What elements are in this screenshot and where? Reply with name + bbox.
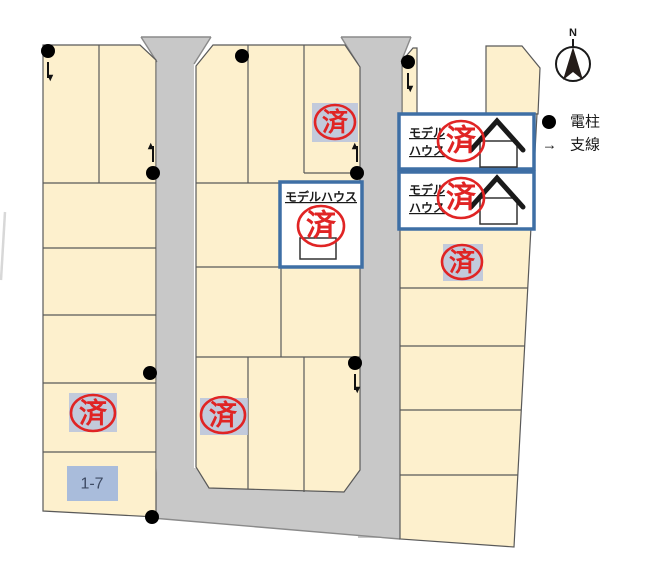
sold-stamp-right-block: 済 [442,244,483,281]
utility-pole-marker [145,510,159,524]
lot-map-svg: 1-7 モデルハウス [0,0,665,586]
utility-pole-marker [350,166,364,180]
utility-pole-marker [348,356,362,370]
utility-pole-marker [401,55,415,69]
left-edge-artifact [1,212,5,280]
lot-1-7-label: 1-7 [67,466,118,501]
legend-pole-icon [542,115,556,129]
sold-stamp-middle-top: 済 [312,103,358,142]
left-block: 1-7 [43,45,156,517]
lot-map-canvas: 1-7 モデルハウス [0,0,665,586]
top-right-lot [486,46,540,114]
compass-north-label: N [569,27,577,39]
sold-stamp-text: 済 [446,125,477,158]
legend-pole-label: 電柱 [570,114,600,131]
sold-stamp-text: 済 [322,107,349,137]
utility-pole-marker [235,49,249,63]
legend-guy-wire-label: 支線 [570,137,600,154]
compass-needle [563,47,583,80]
sold-stamp-left-block: 済 [69,393,117,432]
sold-stamp-text: 済 [306,210,337,243]
map-legend: 電柱 → 支線 [542,114,600,154]
sold-stamp-text: 済 [209,400,238,431]
model-house-label: モデルハウス [285,189,357,204]
sold-stamp-text: 済 [446,182,477,215]
legend-guy-wire-icon: → [542,137,557,154]
sold-stamp-text: 済 [449,247,476,277]
compass-rose: N [556,27,590,81]
utility-pole-marker [41,44,55,58]
utility-pole-marker [143,366,157,380]
utility-pole-marker [146,166,160,180]
lot-1-7-label-text: 1-7 [80,476,103,493]
sold-stamp-middle-bottom: 済 [200,397,248,435]
sold-stamp-text: 済 [79,398,108,429]
